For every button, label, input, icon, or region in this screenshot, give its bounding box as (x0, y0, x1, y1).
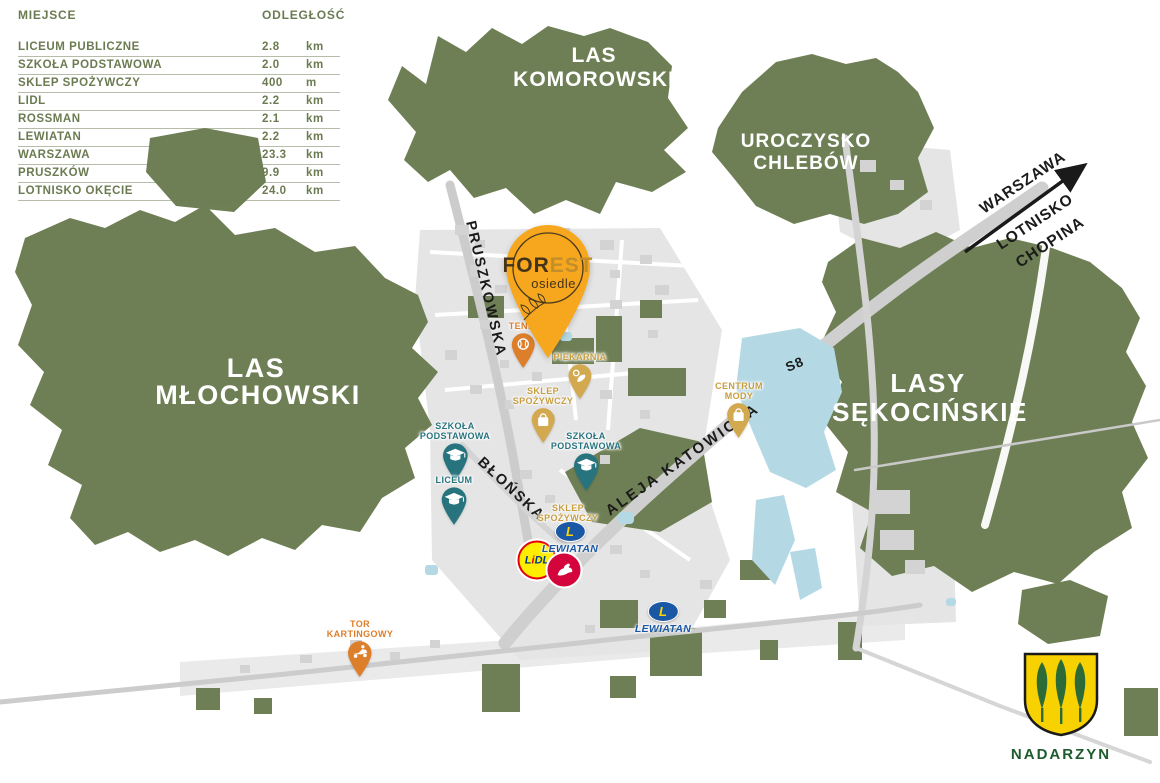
row-place: PRUSZKÓW (18, 167, 262, 179)
lewiatan-oval-icon: L (555, 521, 586, 542)
graduation-cap-icon (572, 453, 601, 491)
table-row: ROSSMAN2.1km (18, 111, 340, 129)
map-page: LAS KOMOROWSKI UROCZYSKO CHLEBÓW LAS MŁO… (0, 0, 1160, 783)
row-place: LEWIATAN (18, 131, 262, 143)
label-sekocinskie-line1: LASY (890, 368, 965, 398)
crest-name: NADARZYN (1011, 746, 1111, 763)
rossmann-logo (546, 552, 583, 589)
forest-osiedle-pin: FOREST osiedle (504, 222, 592, 360)
poi-szkola-podstawowa-2: SZKOŁA PODSTAWOWA (551, 431, 621, 491)
table-row: LOTNISKO OKĘCIE24.0km (18, 183, 340, 201)
row-place: LICEUM PUBLICZNE (18, 41, 262, 53)
label-uroczysko-line2: CHLEBÓW (753, 152, 858, 174)
row-unit: km (306, 41, 340, 53)
row-unit: m (306, 77, 340, 89)
label-mlochowski-line2: MŁOCHOWSKI (155, 380, 360, 410)
poi-tor-kartingowy: TOR KARTINGOWY (327, 619, 394, 677)
poi-szkola-podstawowa-1: SZKOŁA PODSTAWOWA (420, 421, 490, 481)
label-mlochowski-line1: LAS (227, 353, 286, 383)
distance-table-header: MIEJSCE ODLEGŁOŚĆ (18, 8, 340, 22)
lewiatan-oval-icon: L (648, 601, 679, 622)
forest-las-komorowski (388, 26, 688, 214)
row-value: 2.2 (262, 131, 306, 143)
label-sekocinskie-line2: SĘKOCIŃSKIE (832, 397, 1028, 427)
row-place: LOTNISKO OKĘCIE (18, 185, 262, 197)
row-value: 2.0 (262, 59, 306, 71)
table-row: SZKOŁA PODSTAWOWA2.0km (18, 57, 340, 75)
brand-subtitle: osiedle (531, 276, 576, 291)
poi-centrum-mody: CENTRUM MODY (715, 381, 763, 438)
row-value: 23.3 (262, 149, 306, 161)
row-unit: km (306, 59, 340, 71)
header-place: MIEJSCE (18, 8, 262, 22)
poi-kartingowy-label: TOR KARTINGOWY (327, 619, 394, 639)
poi-szkola-2-label: SZKOŁA PODSTAWOWA (551, 431, 621, 451)
coat-of-arms-icon (1021, 650, 1101, 740)
row-value: 2.2 (262, 95, 306, 107)
road-rail-west (0, 605, 920, 702)
row-value: 2.1 (262, 113, 306, 125)
header-distance: ODLEGŁOŚĆ (262, 8, 340, 22)
lewiatan-logo-1: L LEWIATAN (542, 521, 598, 555)
nadarzyn-crest: NADARZYN (1001, 650, 1121, 763)
table-row: LEWIATAN2.2km (18, 129, 340, 147)
row-unit: km (306, 149, 340, 161)
brand-est: EST (550, 254, 592, 277)
label-las-komorowski-line1: LAS (572, 44, 617, 67)
lewiatan-logo-2: L LEWIATAN (635, 601, 691, 635)
row-unit: km (306, 167, 340, 179)
row-unit: km (306, 185, 340, 197)
row-value: 400 (262, 77, 306, 89)
label-uroczysko-line1: UROCZYSKO (741, 131, 871, 152)
table-row: SKLEP SPOŻYWCZY400m (18, 75, 340, 93)
label-las-komorowski-line2: KOMOROWSKI (513, 68, 675, 91)
centaur-icon (551, 557, 577, 583)
row-place: SZKOŁA PODSTAWOWA (18, 59, 262, 71)
row-value: 24.0 (262, 185, 306, 197)
brand-for: FOR (504, 254, 550, 277)
graduation-cap-icon (440, 487, 469, 525)
row-place: ROSSMAN (18, 113, 262, 125)
table-row: LICEUM PUBLICZNE2.8km (18, 39, 340, 57)
row-unit: km (306, 113, 340, 125)
table-row: PRUSZKÓW9.9km (18, 165, 340, 183)
row-unit: km (306, 131, 340, 143)
poi-centrum-mody-label: CENTRUM MODY (715, 381, 763, 401)
row-place: LIDL (18, 95, 262, 107)
distance-table: MIEJSCE ODLEGŁOŚĆ LICEUM PUBLICZNE2.8km … (18, 8, 340, 201)
table-row: LIDL2.2km (18, 93, 340, 111)
row-value: 2.8 (262, 41, 306, 53)
row-unit: km (306, 95, 340, 107)
row-value: 9.9 (262, 167, 306, 179)
poi-liceum-label: LICEUM (436, 475, 473, 485)
lewiatan-name: LEWIATAN (635, 623, 691, 635)
location-pin-icon: FOREST osiedle (504, 222, 592, 360)
svg-text:FOREST: FOREST (504, 254, 592, 277)
table-row: WARSZAWA23.3km (18, 147, 340, 165)
row-place: SKLEP SPOŻYWCZY (18, 77, 262, 89)
shopping-bag-icon (725, 403, 752, 438)
poi-sklep-1-label: SKLEP SPOŻYWCZY (513, 386, 574, 406)
poi-liceum: LICEUM (436, 475, 473, 525)
poi-szkola-1-label: SZKOŁA PODSTAWOWA (420, 421, 490, 441)
go-kart-icon (346, 641, 374, 677)
row-place: WARSZAWA (18, 149, 262, 161)
